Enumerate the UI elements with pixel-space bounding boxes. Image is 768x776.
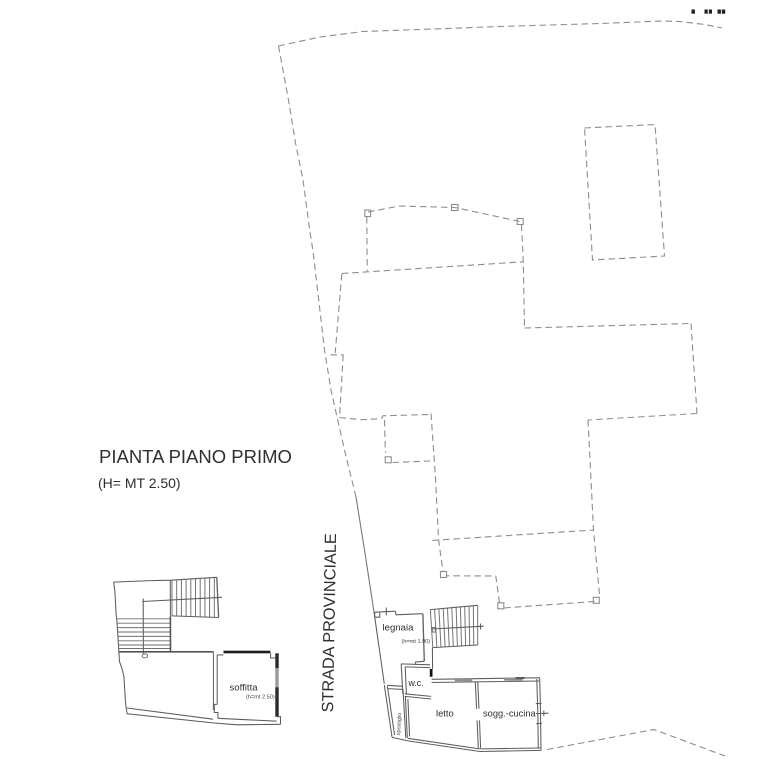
- svg-text:(h=mt 2.50): (h=mt 2.50): [246, 695, 275, 701]
- svg-text:(H= MT 2.50): (H= MT 2.50): [98, 475, 181, 491]
- svg-text:PIANTA PIANO PRIMO: PIANTA PIANO PRIMO: [99, 446, 292, 467]
- svg-text:soffitta: soffitta: [230, 683, 259, 694]
- svg-text:legnaia: legnaia: [383, 623, 415, 634]
- svg-text:(h=mt 1.90): (h=mt 1.90): [402, 639, 431, 645]
- svg-text:STRADA PROVINCIALE: STRADA PROVINCIALE: [319, 533, 340, 713]
- svg-text:letto: letto: [436, 708, 454, 719]
- svg-text:w.c.: w.c.: [408, 678, 424, 688]
- svg-text:sogg.-cucina: sogg.-cucina: [483, 709, 537, 719]
- svg-text:ripostiglio: ripostiglio: [396, 713, 403, 736]
